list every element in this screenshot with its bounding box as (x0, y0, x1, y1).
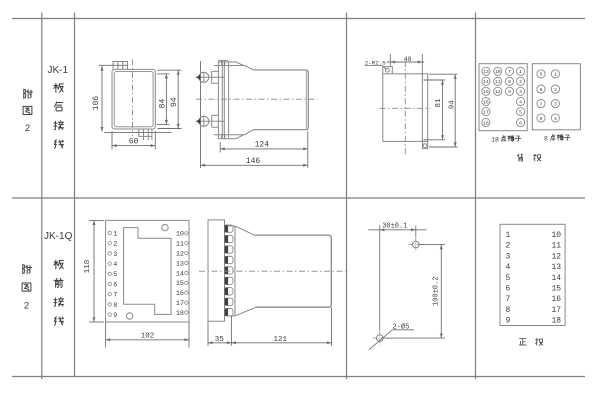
svg-text:10: 10 (495, 69, 501, 75)
svg-text:9: 9 (113, 312, 117, 320)
svg-text:94: 94 (170, 97, 179, 107)
svg-text:8: 8 (544, 135, 548, 142)
svg-text:2: 2 (24, 301, 29, 312)
svg-text:5: 5 (506, 274, 511, 283)
svg-text:84: 84 (158, 99, 167, 109)
svg-text:9: 9 (508, 89, 511, 95)
svg-text:4: 4 (113, 261, 117, 269)
svg-text:35: 35 (215, 336, 225, 344)
svg-text:12: 12 (495, 89, 501, 95)
svg-text:102: 102 (141, 332, 155, 340)
svg-text:10: 10 (176, 231, 184, 239)
svg-text:18: 18 (176, 310, 184, 318)
svg-text:15: 15 (176, 280, 184, 288)
svg-text:9: 9 (506, 317, 511, 326)
svg-text:18: 18 (491, 136, 499, 143)
svg-text:6: 6 (506, 285, 511, 294)
svg-text:121: 121 (274, 336, 288, 344)
svg-text:3: 3 (519, 89, 522, 95)
svg-text:81: 81 (435, 98, 443, 108)
svg-text:8: 8 (506, 306, 511, 315)
svg-text:12: 12 (552, 252, 562, 261)
svg-text:106: 106 (92, 96, 101, 111)
svg-text:10: 10 (552, 231, 562, 240)
svg-text:17: 17 (176, 300, 184, 308)
svg-text:JK-1Q: JK-1Q (44, 231, 73, 242)
svg-text:16: 16 (483, 99, 489, 105)
svg-text:6: 6 (540, 87, 543, 93)
svg-text:3: 3 (506, 252, 511, 261)
svg-text:4: 4 (554, 116, 557, 122)
svg-text:15: 15 (483, 89, 489, 95)
svg-text:1: 1 (113, 230, 117, 238)
svg-text:7: 7 (506, 295, 511, 304)
svg-text:11: 11 (176, 241, 184, 249)
svg-text:16: 16 (176, 290, 184, 298)
svg-text:2: 2 (519, 79, 522, 85)
svg-text:146: 146 (246, 157, 261, 166)
svg-text:1: 1 (554, 72, 557, 78)
svg-text:7: 7 (540, 101, 543, 107)
svg-text:5: 5 (540, 72, 543, 78)
svg-text:15: 15 (552, 285, 562, 294)
svg-text:13: 13 (176, 260, 184, 268)
svg-text:13: 13 (483, 69, 489, 75)
svg-text:17: 17 (552, 306, 562, 315)
svg-text:18: 18 (483, 120, 489, 126)
svg-text:4: 4 (506, 263, 511, 272)
svg-text:118: 118 (84, 260, 92, 274)
svg-text:6: 6 (519, 120, 522, 126)
svg-text:3: 3 (113, 251, 117, 259)
svg-text:14: 14 (552, 274, 562, 283)
svg-text:2: 2 (506, 242, 511, 251)
svg-text:8: 8 (113, 302, 117, 310)
svg-text:14: 14 (483, 79, 489, 85)
svg-text:30±0.1: 30±0.1 (382, 222, 407, 230)
svg-text:JK-1: JK-1 (48, 65, 69, 76)
svg-text:2: 2 (113, 241, 117, 249)
svg-text:94: 94 (449, 100, 457, 110)
svg-text:1: 1 (506, 231, 511, 240)
svg-text:13: 13 (552, 263, 562, 272)
svg-text:11: 11 (552, 242, 562, 251)
svg-text:4: 4 (519, 99, 522, 105)
svg-text:8: 8 (540, 116, 543, 122)
svg-text:3: 3 (554, 101, 557, 107)
svg-text:5: 5 (519, 110, 522, 116)
svg-text:17: 17 (483, 110, 489, 116)
svg-text:100±0.2: 100±0.2 (432, 277, 440, 306)
svg-text:8: 8 (508, 79, 511, 85)
svg-text:2: 2 (554, 87, 557, 93)
svg-text:7: 7 (508, 69, 511, 75)
svg-text:6: 6 (113, 281, 117, 289)
svg-text:60: 60 (129, 138, 139, 147)
svg-text:2: 2 (25, 123, 30, 134)
svg-text:7: 7 (113, 292, 117, 300)
svg-text:16: 16 (552, 295, 562, 304)
svg-text:5: 5 (113, 271, 117, 279)
svg-text:124: 124 (255, 140, 270, 149)
svg-text:11: 11 (495, 79, 501, 85)
svg-text:12: 12 (176, 251, 184, 259)
svg-text:1: 1 (519, 69, 522, 75)
svg-text:18: 18 (552, 317, 562, 326)
svg-text:14: 14 (176, 270, 184, 278)
